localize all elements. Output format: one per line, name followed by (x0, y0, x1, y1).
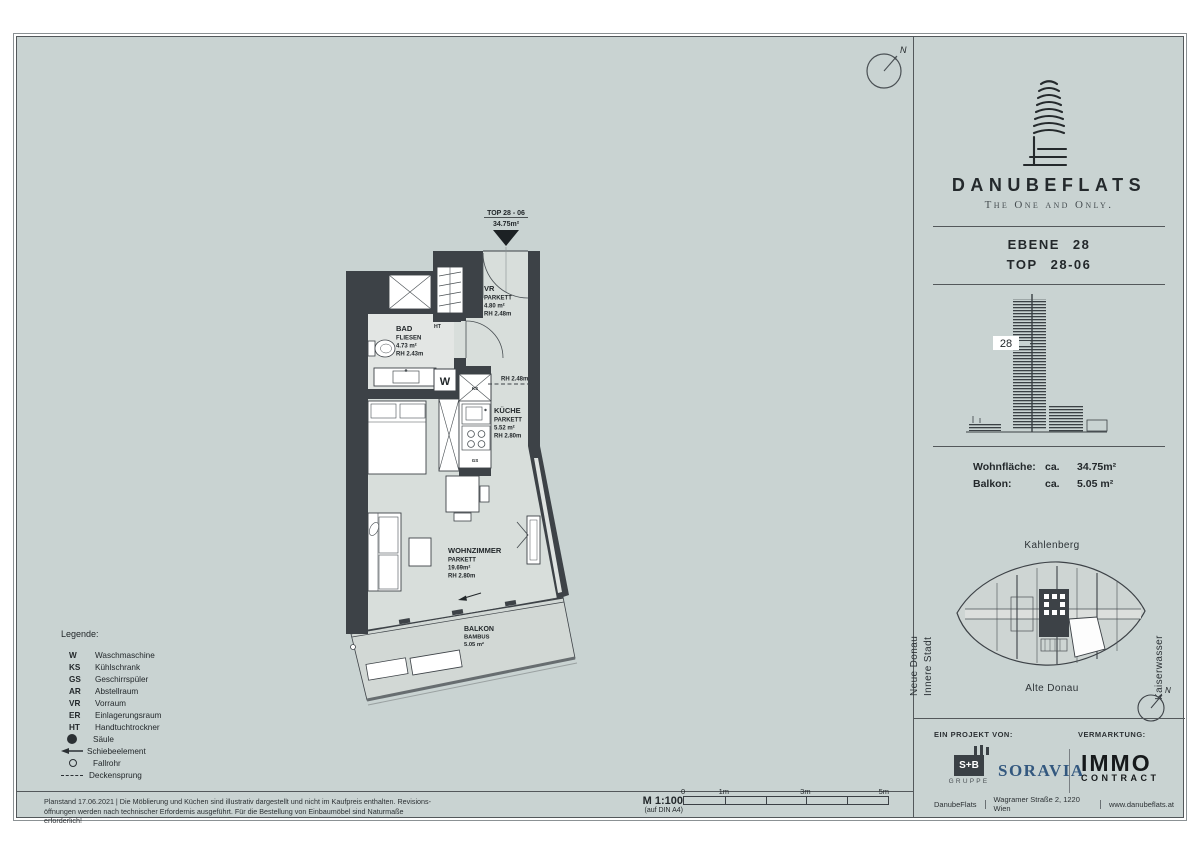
room-area-vr: 4.80 m² (484, 303, 505, 310)
legend-row: VRVorraum (61, 697, 221, 709)
sliding-element-symbol (61, 747, 85, 755)
room-rh-vr: RH 2.48m (484, 312, 511, 318)
towel-dryer-label: HT (434, 324, 442, 330)
entrance-marker (493, 230, 519, 246)
room-name-kueche: KÜCHE (494, 406, 521, 415)
room-floor-balkon: BAMBUS (464, 635, 490, 641)
sb-logo-sub: GRUPPE (946, 778, 992, 785)
legend-label: Deckensprung (87, 771, 142, 780)
legend-label: Fallrohr (93, 759, 121, 768)
address-separator (985, 800, 986, 809)
sb-logo-text: S+B (959, 760, 979, 771)
room-floor-kueche: PARKETT (494, 418, 522, 424)
toilet-tank (368, 341, 375, 356)
room-rh-wohnzimmer: RH 2.80m (448, 574, 475, 580)
brand-name: DANUBEFLATS (913, 175, 1185, 196)
legend-row: EREinlagerungsraum (61, 709, 221, 721)
immo-contract-logo: IMMO CONTRACT (1081, 753, 1160, 783)
brand-tagline: The One and Only. (913, 199, 1185, 211)
scale-bar: 0 1m 3m 5m (683, 787, 887, 809)
fridge-label: KS (472, 386, 478, 391)
map-core-window (1060, 610, 1065, 615)
panel-rule-2 (933, 284, 1165, 285)
area-row-wohnflaeche: Wohnfläche: ca. 34.75m² (973, 461, 1143, 473)
scale-tick-1m: 1m (719, 787, 729, 796)
callout-top-label: TOP 28 - 06 (487, 210, 525, 217)
legend-row: ARAbstellraum (61, 685, 221, 697)
legend-label: Kühlschrank (95, 663, 140, 672)
area-value: 34.75m² (1077, 461, 1143, 473)
area-row-balkon: Balkon: ca. 5.05 m² (973, 478, 1143, 490)
level-label: EBENE (1008, 237, 1060, 252)
compass-n-label: N (900, 45, 907, 55)
sb-gruppe-logo: S+B GRUPPE (946, 745, 992, 785)
map-label-north: Kahlenberg (957, 540, 1147, 551)
map-core-window (1060, 602, 1065, 607)
scale-seg (847, 797, 848, 804)
sideboard (527, 516, 540, 564)
toilet-bowl (375, 340, 395, 357)
legend-label: Geschirrspüler (95, 675, 148, 684)
scale-block: M 1:100 (auf DIN A4) (607, 795, 683, 814)
legend-row: GSGeschirrspüler (61, 673, 221, 685)
room-area-kueche: 5.52 m² (494, 425, 515, 432)
legend-abbr: HT (61, 723, 95, 732)
panel-divider (913, 37, 914, 817)
floor-label: 28 (1000, 338, 1012, 350)
legend-label: Einlagerungsraum (95, 711, 161, 720)
map-label-west1: Neue Donau (909, 636, 920, 696)
immo-logo-line1: IMMO (1081, 753, 1160, 773)
area-value: 5.05 m² (1077, 478, 1143, 490)
room-name-wohnzimmer: WOHNZIMMER (448, 546, 502, 555)
room-name-bad: BAD (396, 324, 413, 333)
immo-logo-line2: CONTRACT (1081, 773, 1160, 783)
chair (480, 486, 489, 502)
legend-abbr: GS (61, 675, 95, 684)
legend-abbr: KS (61, 663, 95, 672)
room-name-vr: VR (484, 284, 495, 293)
soravia-logo: SORAVIA (998, 761, 1085, 781)
address-street: Wagramer Straße 2, 1220 Wien (993, 795, 1092, 813)
map-core-window (1044, 602, 1049, 607)
legend-abbr: AR (61, 687, 95, 696)
legend-label: Abstellraum (95, 687, 138, 696)
bed (368, 401, 426, 474)
legend-label: Vorraum (95, 699, 126, 708)
chair (454, 513, 471, 521)
scale-sub: (auf DIN A4) (607, 807, 683, 814)
area-label: Wohnfläche: (973, 461, 1045, 473)
scale-label: M 1:100 (607, 795, 683, 807)
area-ca: ca. (1045, 478, 1077, 490)
map-core-window (1052, 594, 1057, 599)
legend-row: WWaschmaschine (61, 649, 221, 661)
ceiling-jump-symbol (61, 775, 83, 776)
scale-tick-5m: 5m (879, 787, 889, 796)
brand-logo-icon (1014, 77, 1084, 173)
note-line1: Planstand 17.06.2021 | Die Möblierung un… (44, 797, 434, 807)
top-value: 28-06 (1051, 257, 1092, 272)
washing-machine-label: W (440, 376, 451, 388)
plan-sheet-page: N (0, 0, 1200, 848)
scale-tick-3m: 3m (800, 787, 810, 796)
coffee-table (409, 538, 431, 566)
scale-seg (766, 797, 767, 804)
legend-title: Legende: (61, 629, 221, 639)
room-rh-kueche: RH 2.80m (494, 434, 521, 440)
legend-label: Schiebeelement (87, 747, 146, 756)
plan-sheet: N (16, 36, 1184, 818)
downpipe-symbol (69, 759, 77, 767)
project-by-label: EIN PROJEKT VON: (934, 730, 1013, 739)
unit-top: TOP 28-06 (913, 257, 1185, 272)
faucet-kitchen (484, 409, 486, 411)
scale-seg (806, 797, 807, 804)
ceiling-jump-label: RH 2.48m (501, 377, 528, 383)
map-label-south: Alte Donau (957, 683, 1147, 694)
building-elevation: 28 (947, 289, 1157, 443)
wall-right-upper (528, 251, 540, 446)
wall-kitchen-top (459, 366, 491, 374)
site-key-map (951, 553, 1151, 677)
legend-label: Waschmaschine (95, 651, 155, 660)
legend-row: Fallrohr (61, 757, 221, 769)
sb-logo-bars (946, 745, 992, 755)
map-label-west2: Innere Stadt (923, 637, 934, 696)
wall-left (346, 271, 368, 634)
callout-area-label: 34.75m² (493, 221, 520, 228)
panel-rule-3 (933, 446, 1165, 447)
map-compass-n-label: N (1165, 686, 1171, 695)
legend-row: KSKühlschrank (61, 661, 221, 673)
level-value: 28 (1073, 237, 1090, 252)
unit-level: EBENE 28 (913, 237, 1185, 252)
tower (1013, 299, 1046, 429)
room-area-bad: 4.73 m² (396, 343, 417, 350)
legend-abbr: ER (61, 711, 95, 720)
dining-table (446, 476, 479, 512)
plan-note: Planstand 17.06.2021 | Die Möblierung un… (44, 797, 434, 826)
legend: Legende: WWaschmaschine KSKühlschrank GS… (61, 629, 221, 781)
map-compass: N (1129, 681, 1179, 731)
legend-row: Deckensprung (61, 769, 221, 781)
marketing-label: VERMARKTUNG: (1078, 730, 1146, 739)
address-web: www.danubeflats.at (1109, 800, 1174, 809)
legend-row: Schiebeelement (61, 745, 221, 757)
map-core-window (1044, 610, 1049, 615)
legend-abbr: VR (61, 699, 95, 708)
wall-kitchen-bottom (459, 468, 491, 476)
north-compass: N (855, 39, 917, 101)
faucet-bad (405, 369, 408, 372)
room-floor-bad: FLIESEN (396, 336, 421, 342)
legend-label: Handtuchtrockner (95, 723, 160, 732)
mid-rise (1049, 406, 1083, 432)
room-name-balkon: BALKON (464, 626, 494, 633)
address-line: DanubeFlats Wagramer Straße 2, 1220 Wien… (934, 795, 1174, 813)
panel-rule-4 (913, 718, 1185, 719)
legend-row: Säule (61, 733, 221, 745)
legend-abbr: W (61, 651, 95, 660)
scale-tick-0: 0 (681, 787, 685, 796)
podium-right (1087, 420, 1107, 431)
dishwasher-label: GS (472, 458, 479, 463)
scale-bar-rect (683, 796, 889, 805)
partners-divider (1069, 749, 1070, 793)
map-core-window (1060, 594, 1065, 599)
wall-bad-a (454, 314, 466, 321)
floor-plan: TOP 28 - 06 34.75m² (321, 206, 581, 721)
address-separator (1100, 800, 1101, 809)
top-label: TOP (1007, 257, 1038, 272)
column-symbol (67, 734, 77, 744)
area-label: Balkon: (973, 478, 1045, 490)
room-floor-vr: PARKETT (484, 296, 512, 302)
sb-logo-box: S+B (954, 755, 984, 776)
legend-row: HTHandtuchtrockner (61, 721, 221, 733)
room-area-wohnzimmer: 19.69m² (448, 565, 470, 572)
room-floor-wohnzimmer: PARKETT (448, 558, 476, 564)
podium-left (969, 423, 1001, 431)
areas-table: Wohnfläche: ca. 34.75m² Balkon: ca. 5.05… (973, 461, 1143, 495)
address-brand: DanubeFlats (934, 800, 977, 809)
map-core-window (1052, 610, 1057, 615)
room-rh-bad: RH 2.43m (396, 352, 423, 358)
area-ca: ca. (1045, 461, 1077, 473)
scale-seg (725, 797, 726, 804)
map-core-window (1044, 594, 1049, 599)
panel-rule-1 (933, 226, 1165, 227)
legend-label: Säule (93, 735, 114, 744)
downpipe (351, 645, 356, 650)
room-area-balkon: 5.05 m² (464, 641, 484, 648)
note-line2: öffnungen werden nach technischer Erford… (44, 807, 434, 826)
